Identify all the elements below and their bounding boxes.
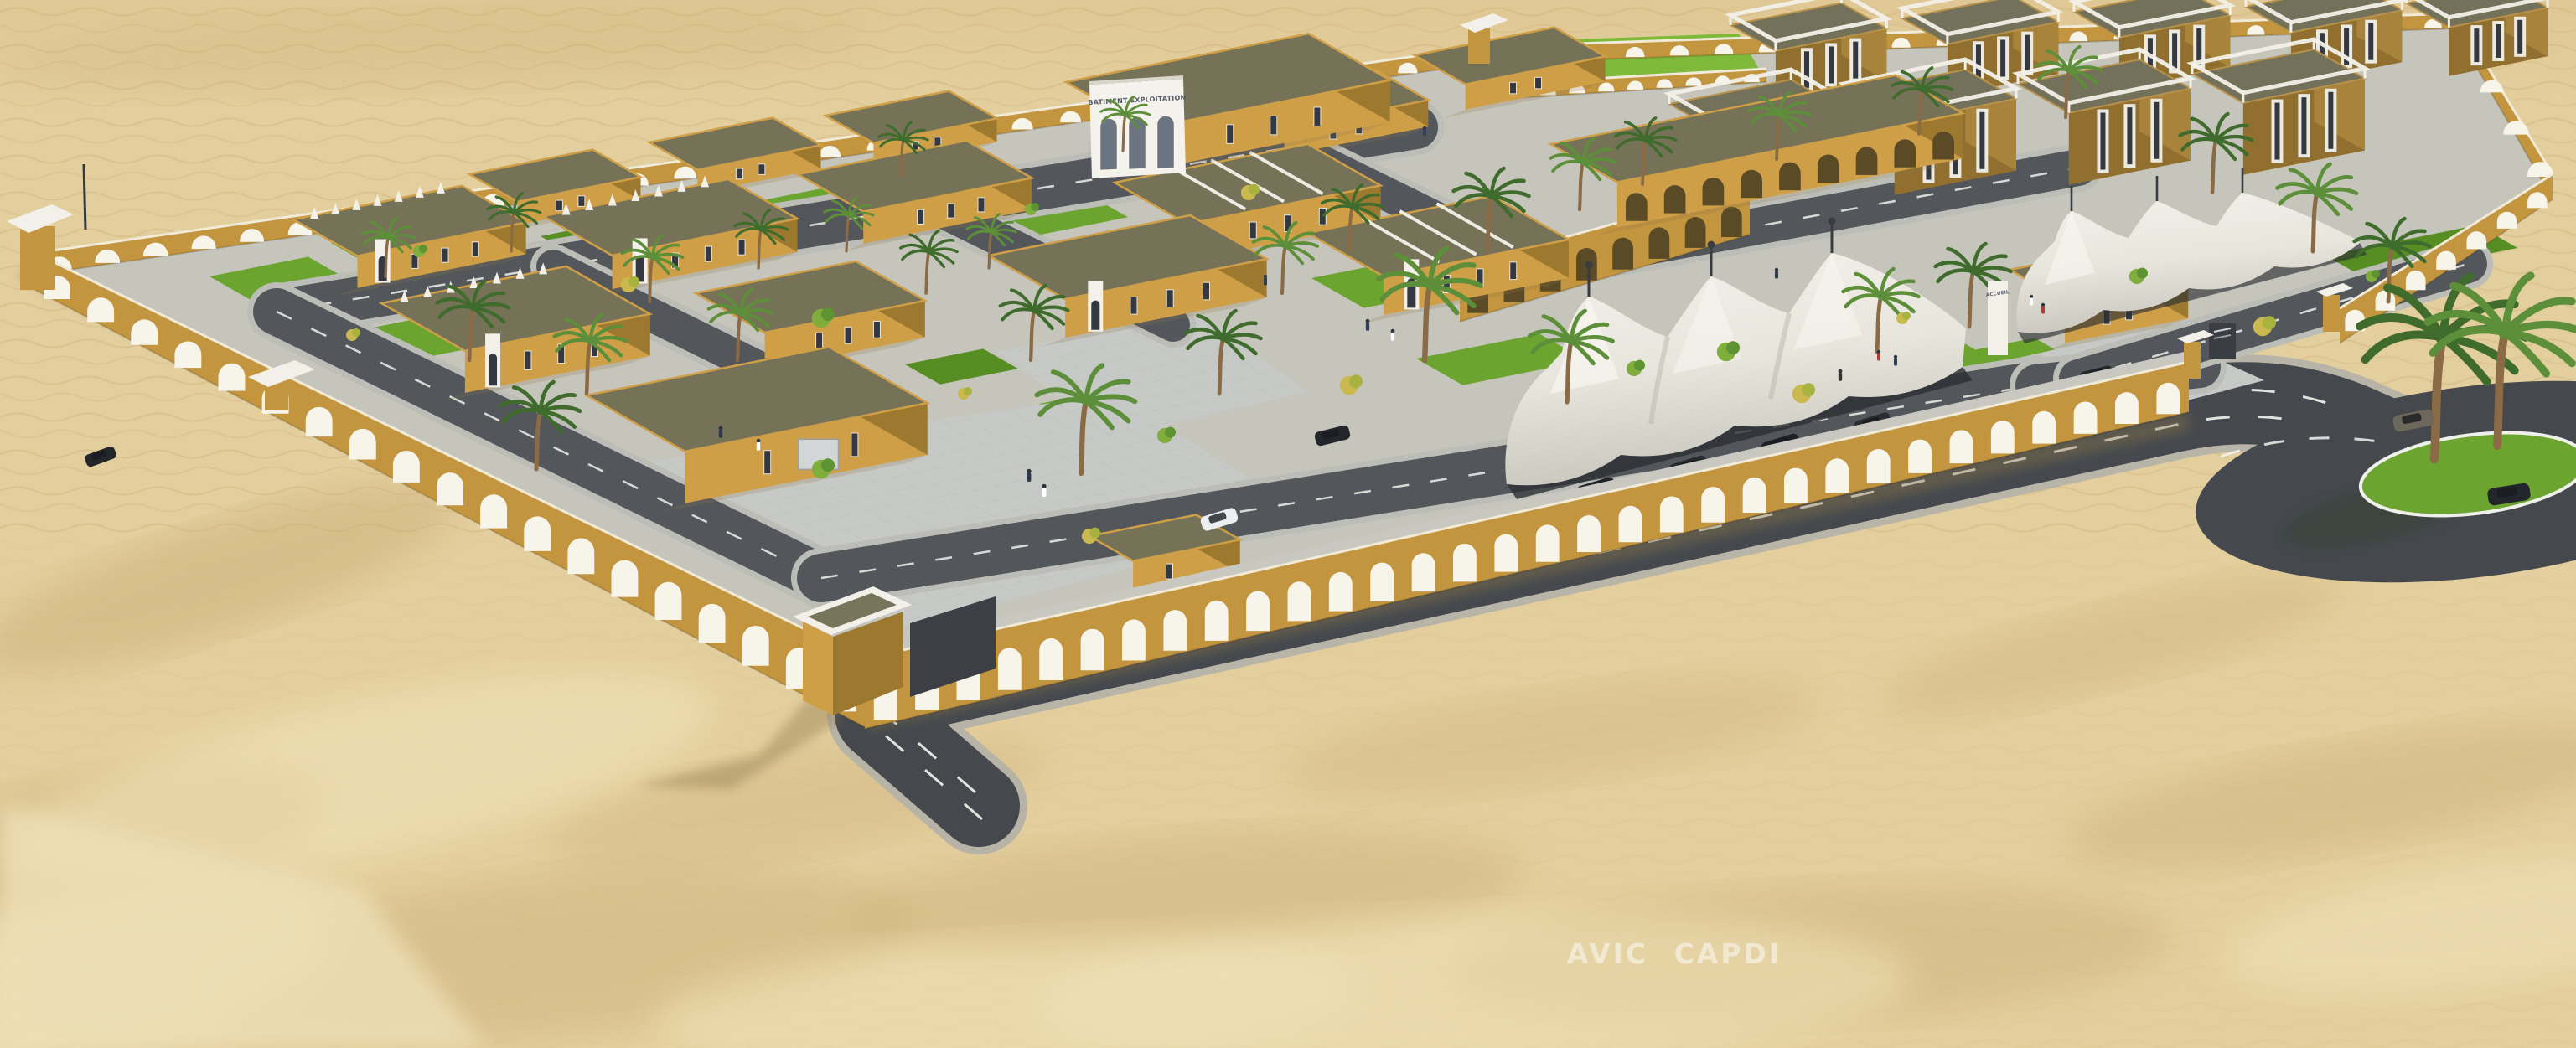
window bbox=[918, 209, 924, 224]
wall-arch bbox=[480, 494, 507, 528]
window bbox=[1314, 107, 1321, 126]
window bbox=[948, 204, 954, 218]
window bbox=[978, 198, 985, 212]
wall-arch bbox=[699, 604, 726, 643]
wall-arch bbox=[2032, 411, 2056, 444]
person bbox=[1775, 268, 1778, 279]
wall-arch bbox=[1991, 421, 2015, 453]
window bbox=[578, 196, 585, 207]
wall-arch bbox=[2156, 383, 2180, 414]
wall-arch bbox=[2074, 401, 2098, 433]
wall-arch bbox=[1894, 139, 1916, 167]
gate-post-right bbox=[2323, 295, 2340, 332]
window bbox=[845, 327, 851, 343]
person bbox=[1894, 355, 1897, 366]
window bbox=[1319, 208, 1326, 225]
wall-arch bbox=[437, 472, 463, 505]
window bbox=[1510, 82, 1517, 94]
wall-arch bbox=[1619, 506, 1642, 542]
window bbox=[816, 333, 823, 349]
wall-arch bbox=[1743, 478, 1766, 513]
person bbox=[1391, 329, 1395, 341]
window bbox=[442, 248, 448, 262]
gate-tower-front bbox=[803, 622, 833, 715]
window bbox=[1227, 125, 1234, 144]
wall-arch bbox=[1453, 544, 1477, 581]
window bbox=[851, 433, 858, 457]
wall-arch bbox=[1779, 163, 1801, 190]
wall-arch bbox=[567, 539, 594, 575]
wall-arch bbox=[1825, 458, 1849, 493]
wall-arch bbox=[742, 626, 769, 666]
person bbox=[1264, 275, 1267, 286]
wall-arch bbox=[1122, 619, 1146, 660]
site-rendering-canvas: BATIMENT EXPLOITATION bbox=[0, 0, 2576, 1048]
window bbox=[873, 321, 880, 338]
wall-arch bbox=[524, 516, 551, 551]
wall-arch bbox=[1412, 553, 1435, 591]
window bbox=[1203, 282, 1209, 300]
wall-arch bbox=[174, 341, 201, 368]
wall-arch bbox=[1246, 591, 1270, 632]
wall-arch bbox=[1081, 629, 1104, 671]
person bbox=[757, 439, 761, 451]
wall-arch bbox=[349, 429, 376, 460]
person bbox=[1839, 369, 1843, 381]
wall-arch bbox=[998, 648, 1022, 689]
wall-arch bbox=[1867, 449, 1891, 483]
wall-arch bbox=[2406, 271, 2426, 290]
person bbox=[1423, 126, 1426, 136]
window bbox=[472, 242, 478, 256]
person bbox=[1877, 350, 1880, 361]
wall-arch bbox=[1950, 430, 1973, 463]
wall-arch bbox=[2115, 392, 2139, 424]
person bbox=[1042, 484, 1046, 497]
wall-arch bbox=[655, 582, 682, 620]
wall-arch bbox=[611, 560, 638, 597]
wall-arch bbox=[1536, 524, 1560, 561]
window bbox=[1130, 297, 1137, 314]
person bbox=[1366, 319, 1370, 331]
window bbox=[1166, 564, 1173, 579]
wall-arch bbox=[1577, 515, 1601, 552]
window bbox=[1535, 77, 1542, 89]
wall-arch bbox=[306, 407, 333, 436]
window bbox=[736, 168, 742, 179]
wall-arch bbox=[1818, 155, 1839, 183]
window bbox=[556, 200, 562, 211]
person bbox=[1027, 469, 1031, 482]
window bbox=[1270, 116, 1277, 135]
flag-pole bbox=[84, 164, 85, 230]
entrance-sign-pylon bbox=[2209, 323, 2236, 359]
wall-arch bbox=[1039, 638, 1063, 680]
wall-arch bbox=[393, 451, 420, 483]
wall-arch bbox=[1701, 487, 1725, 523]
wall-arch bbox=[1494, 534, 1518, 572]
wall-arch bbox=[1784, 468, 1808, 503]
wall-arch bbox=[1908, 440, 1932, 473]
wall-arch bbox=[1370, 563, 1394, 601]
person bbox=[2030, 295, 2033, 306]
wall-arch bbox=[1856, 147, 1878, 174]
window bbox=[1166, 290, 1173, 307]
wall-arch bbox=[1288, 581, 1311, 621]
architectural-rendering: BATIMENT EXPLOITATION bbox=[0, 0, 2576, 1048]
wall-arch bbox=[1664, 185, 1686, 213]
wall-arch bbox=[1741, 170, 1762, 198]
gate-post-left bbox=[2184, 342, 2201, 379]
wall-arch bbox=[219, 364, 246, 391]
person bbox=[719, 426, 723, 438]
window bbox=[764, 451, 771, 474]
wall-arch bbox=[1649, 227, 1670, 258]
wall-arch bbox=[1685, 217, 1706, 248]
wall-arch bbox=[1163, 610, 1187, 651]
portico-arches bbox=[1099, 115, 1175, 171]
wall-arch bbox=[1612, 238, 1633, 270]
wall-arch bbox=[1205, 601, 1229, 641]
wall-arch bbox=[1660, 496, 1684, 532]
window bbox=[705, 246, 711, 261]
wall-arch bbox=[1626, 193, 1648, 220]
wall-arch bbox=[1721, 207, 1742, 237]
person bbox=[2041, 303, 2045, 314]
window bbox=[738, 240, 745, 255]
wall-arch bbox=[1703, 178, 1725, 205]
wall-arch bbox=[1932, 132, 1954, 159]
window bbox=[1510, 262, 1517, 280]
wall-arch bbox=[1329, 572, 1353, 612]
watermark-text: AVIC CAPDI bbox=[1567, 937, 1782, 970]
window bbox=[1249, 222, 1256, 239]
window bbox=[758, 164, 765, 175]
window bbox=[525, 351, 531, 370]
